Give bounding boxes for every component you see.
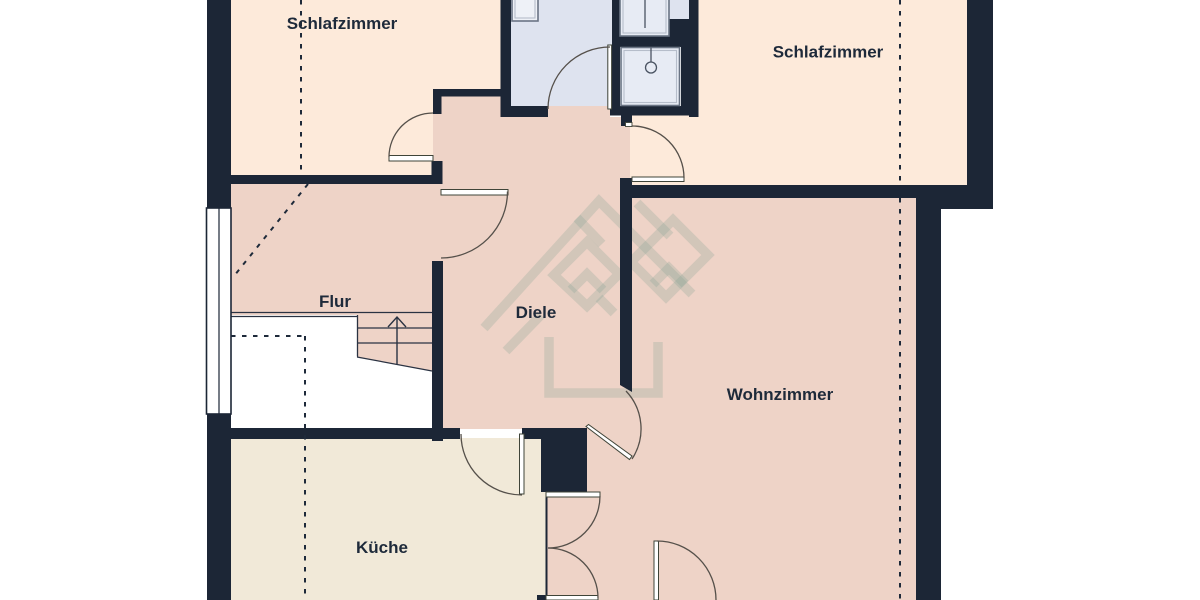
svg-text:Schlafzimmer: Schlafzimmer xyxy=(773,43,884,62)
svg-text:Küche: Küche xyxy=(356,538,408,557)
svg-text:Schlafzimmer: Schlafzimmer xyxy=(287,14,398,33)
svg-text:Flur: Flur xyxy=(319,292,351,311)
svg-text:Wohnzimmer: Wohnzimmer xyxy=(727,385,834,404)
svg-text:Diele: Diele xyxy=(516,303,557,322)
